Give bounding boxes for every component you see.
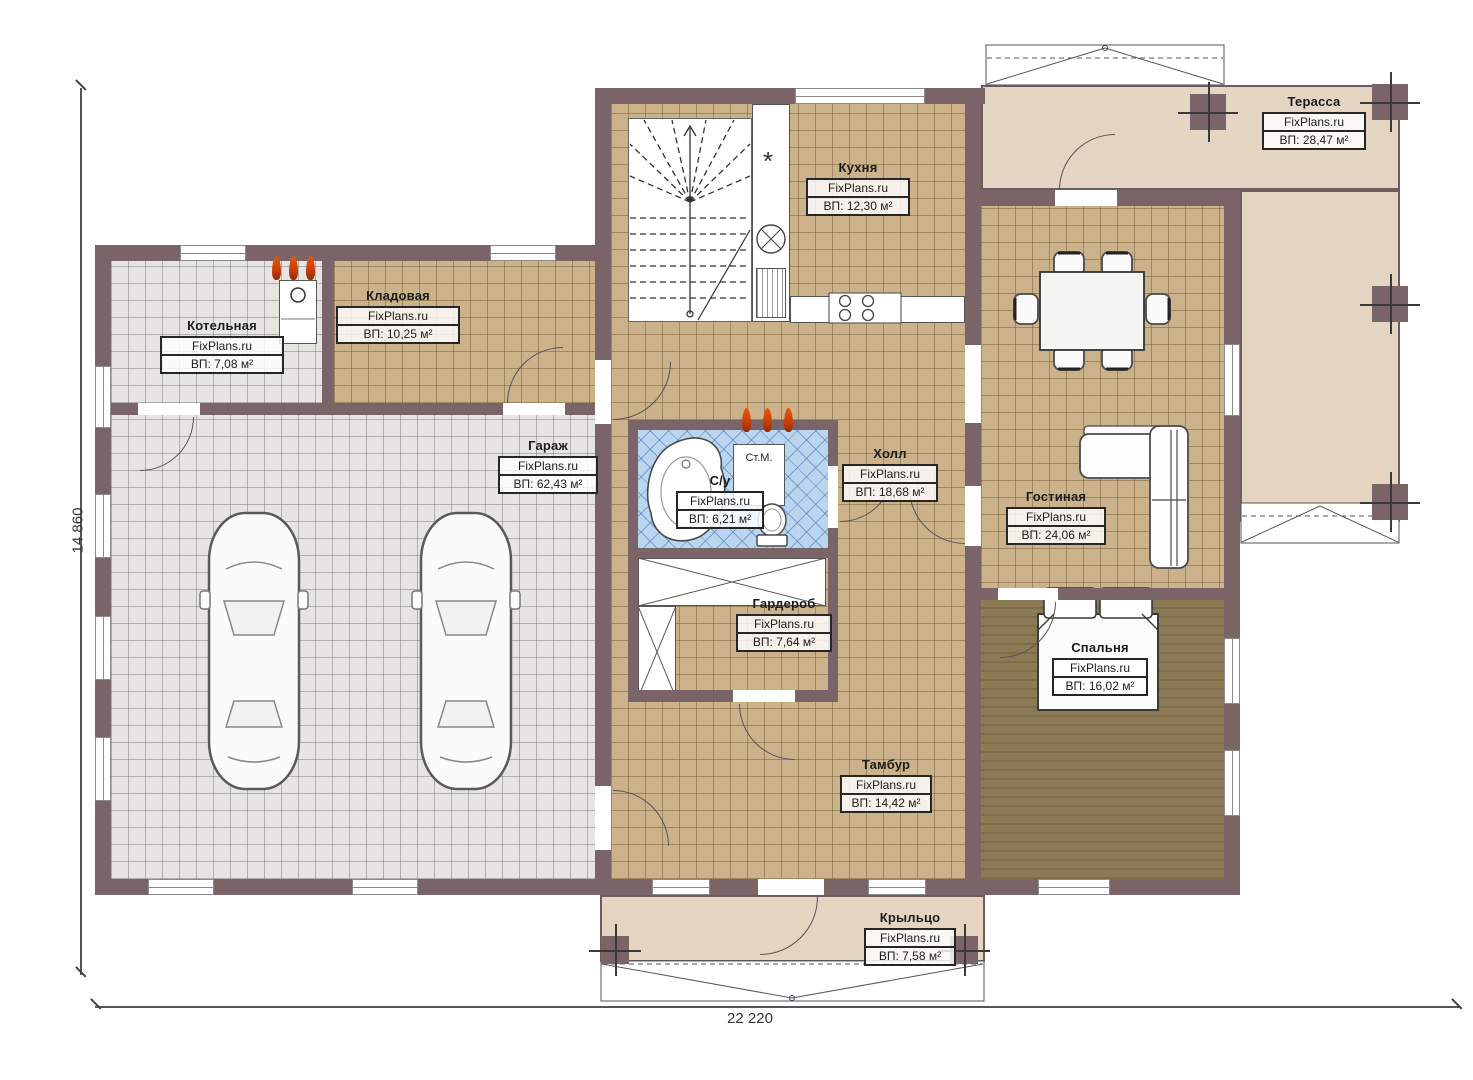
terrace-column <box>1372 484 1408 520</box>
room-label-storage: Кладовая FixPlans.ru ВП: 10,25 м² <box>336 288 460 344</box>
dishwasher <box>756 268 786 318</box>
brand-label: FixPlans.ru <box>338 308 458 326</box>
terrace-column <box>1190 94 1226 130</box>
brand-label: FixPlans.ru <box>500 458 596 476</box>
door-opening <box>595 360 611 424</box>
wall-segment <box>95 879 985 895</box>
car <box>410 505 522 797</box>
room-name: Кухня <box>806 160 910 175</box>
window <box>490 245 556 261</box>
room-label-bedroom: Спальня FixPlans.ru ВП: 16,02 м² <box>1052 640 1148 696</box>
room-label-porch: Крыльцо FixPlans.ru ВП: 7,58 м² <box>864 910 956 966</box>
room-area: ВП: 14,42 м² <box>842 795 930 811</box>
door-opening <box>758 879 824 895</box>
room-label-boiler-room: Котельная FixPlans.ru ВП: 7,08 м² <box>160 318 284 374</box>
room-name: С/у <box>676 473 764 488</box>
brand-label: FixPlans.ru <box>866 930 954 948</box>
window <box>1224 638 1240 704</box>
room-area: ВП: 18,68 м² <box>844 484 936 500</box>
boiler-unit <box>279 280 317 344</box>
window <box>352 879 418 895</box>
wall-segment <box>628 548 638 702</box>
brand-label: FixPlans.ru <box>738 616 830 634</box>
dimension-tick <box>91 998 102 1009</box>
room-label-hall: Холл FixPlans.ru ВП: 18,68 м² <box>842 446 938 502</box>
room-name: Холл <box>842 446 938 461</box>
car <box>198 505 310 797</box>
wall-segment <box>595 88 611 261</box>
brand-label: FixPlans.ru <box>162 338 282 356</box>
window <box>1224 750 1240 816</box>
room-label-vestibule: Тамбур FixPlans.ru ВП: 14,42 м² <box>840 757 932 813</box>
window <box>95 737 111 801</box>
room-name: Гараж <box>498 438 598 453</box>
room-area: ВП: 7,64 м² <box>738 634 830 650</box>
room-area: ВП: 24,06 м² <box>1008 527 1104 543</box>
window <box>95 494 111 558</box>
brand-label: FixPlans.ru <box>844 466 936 484</box>
stairs <box>628 118 752 322</box>
room-area: ВП: 6,21 м² <box>678 511 762 527</box>
room-label-wardrobe: Гардероб FixPlans.ru ВП: 7,64 м² <box>736 596 832 652</box>
window <box>868 879 926 895</box>
wall-segment <box>965 600 981 895</box>
wall-segment <box>595 88 985 104</box>
porch-column <box>601 936 629 964</box>
room-area: ВП: 28,47 м² <box>1264 132 1364 148</box>
kitchen-sink-icon <box>754 222 788 256</box>
brand-label: FixPlans.ru <box>1054 660 1146 678</box>
wardrobe-cabinet <box>638 606 676 698</box>
door-opening <box>998 588 1058 600</box>
window <box>795 88 925 104</box>
window <box>1038 879 1110 895</box>
porch-steps <box>600 960 985 1002</box>
wall-segment <box>965 88 981 206</box>
room-area: ВП: 7,08 м² <box>162 356 282 372</box>
room-label-terrace: Терасса FixPlans.ru ВП: 28,47 м² <box>1262 94 1366 150</box>
dimension-width-label: 22 220 <box>695 1010 805 1027</box>
door-opening <box>965 486 981 546</box>
brand-label: FixPlans.ru <box>808 180 908 198</box>
window <box>180 245 246 261</box>
dimension-tick <box>1452 998 1463 1009</box>
door-opening <box>828 466 838 528</box>
room-area: ВП: 16,02 м² <box>1054 678 1146 694</box>
door-opening <box>595 786 611 850</box>
wall-segment <box>628 420 638 558</box>
brand-label: FixPlans.ru <box>1008 509 1104 527</box>
room-area: ВП: 10,25 м² <box>338 326 458 342</box>
freezer-icon: * <box>763 148 773 174</box>
window <box>95 616 111 680</box>
door-opening <box>733 690 795 702</box>
room-label-kitchen: Кухня FixPlans.ru ВП: 12,30 м² <box>806 160 910 216</box>
room-area: ВП: 7,58 м² <box>866 948 954 964</box>
floor-plan-canvas: * Ст.М. <box>0 0 1473 1080</box>
wall-segment <box>628 548 838 558</box>
window <box>652 879 710 895</box>
room-name: Спальня <box>1052 640 1148 655</box>
door-opening <box>138 403 200 415</box>
window <box>1224 344 1240 416</box>
door-opening <box>503 403 565 415</box>
dimension-line-bottom <box>95 1006 1460 1008</box>
terrace-column <box>1372 84 1408 120</box>
window <box>95 366 111 428</box>
passage-opening <box>965 345 981 423</box>
brand-label: FixPlans.ru <box>1264 114 1364 132</box>
room-area: ВП: 62,43 м² <box>500 476 596 492</box>
room-name: Гостиная <box>1006 489 1106 504</box>
dining-table <box>1012 250 1172 372</box>
washing-machine-label: Ст.М. <box>734 445 784 464</box>
wall-segment <box>322 261 334 415</box>
room-name: Терасса <box>1262 94 1366 109</box>
brand-label: FixPlans.ru <box>678 493 762 511</box>
room-name: Котельная <box>160 318 284 333</box>
room-label-bathroom: С/у FixPlans.ru ВП: 6,21 м² <box>676 473 764 529</box>
room-name: Гардероб <box>736 596 832 611</box>
terrace-floor <box>1240 190 1400 522</box>
room-label-living-room: Гостиная FixPlans.ru ВП: 24,06 м² <box>1006 489 1106 545</box>
terrace-steps <box>985 44 1225 86</box>
room-name: Кладовая <box>336 288 460 303</box>
stove-icon <box>828 292 902 324</box>
room-area: ВП: 12,30 м² <box>808 198 908 214</box>
room-name: Крыльцо <box>864 910 956 925</box>
brand-label: FixPlans.ru <box>842 777 930 795</box>
dimension-height-label: 14 860 <box>70 481 87 581</box>
window <box>148 879 214 895</box>
terrace-column <box>1372 286 1408 322</box>
wall-segment <box>981 879 1240 895</box>
wall-segment <box>628 420 838 430</box>
door-opening <box>1055 190 1117 206</box>
room-label-garage: Гараж FixPlans.ru ВП: 62,43 м² <box>498 438 598 494</box>
room-name: Тамбур <box>840 757 932 772</box>
